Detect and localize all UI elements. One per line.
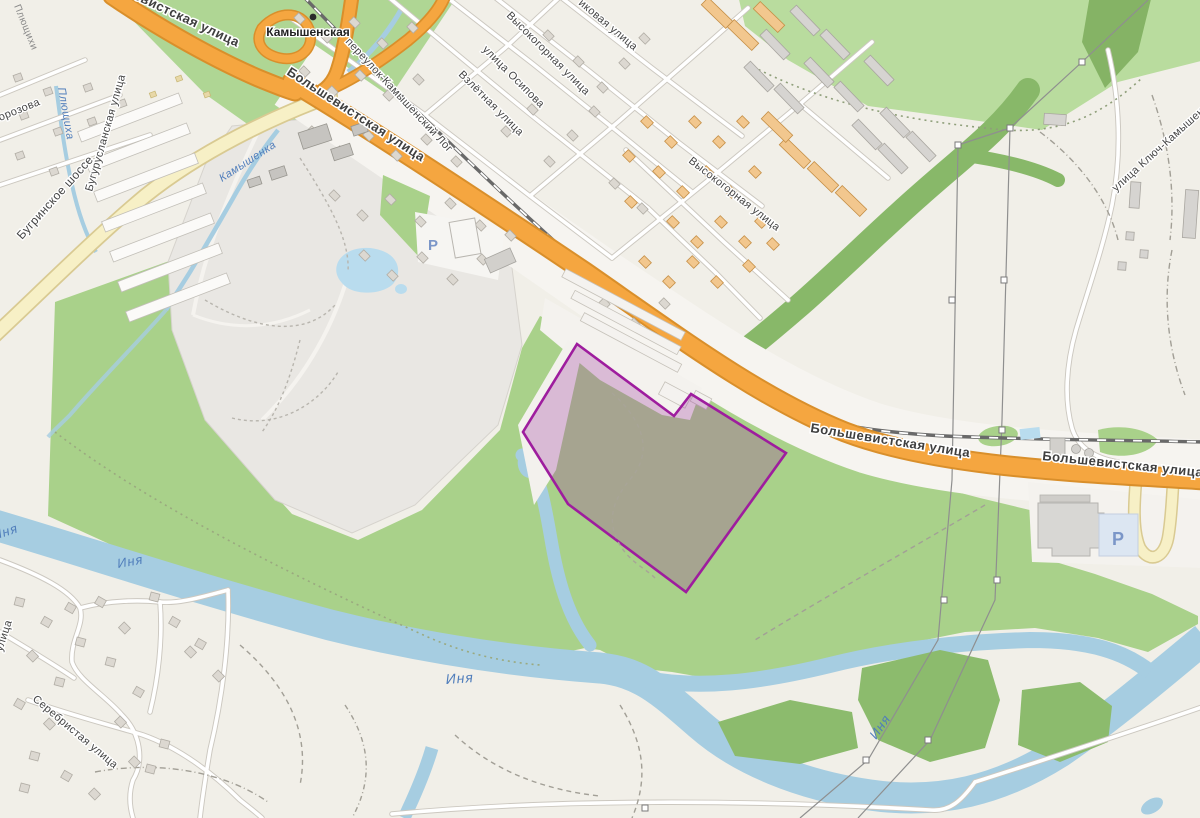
station-label-kamyshenskaya: Камышенская — [266, 25, 350, 39]
building — [19, 783, 30, 793]
building — [1182, 190, 1198, 239]
building — [1129, 182, 1141, 209]
building — [14, 597, 25, 607]
map-canvas[interactable]: Большевистская улица Большевистская улиц… — [0, 0, 1200, 818]
water-label-inya-3: Иня — [445, 669, 474, 687]
building — [159, 739, 170, 749]
map-container[interactable]: Большевистская улица Большевистская улиц… — [0, 0, 1200, 818]
building — [75, 637, 86, 647]
building — [1126, 232, 1135, 241]
building — [449, 218, 481, 258]
station-dot — [310, 14, 317, 21]
parking-icon-mall: P — [1112, 529, 1124, 549]
building — [1044, 113, 1067, 126]
building — [149, 592, 160, 602]
building — [145, 764, 156, 774]
building — [105, 657, 116, 667]
building — [1140, 250, 1149, 259]
parking-icon: P — [428, 237, 438, 254]
building — [1118, 262, 1127, 271]
building — [54, 677, 65, 687]
building — [29, 751, 40, 761]
